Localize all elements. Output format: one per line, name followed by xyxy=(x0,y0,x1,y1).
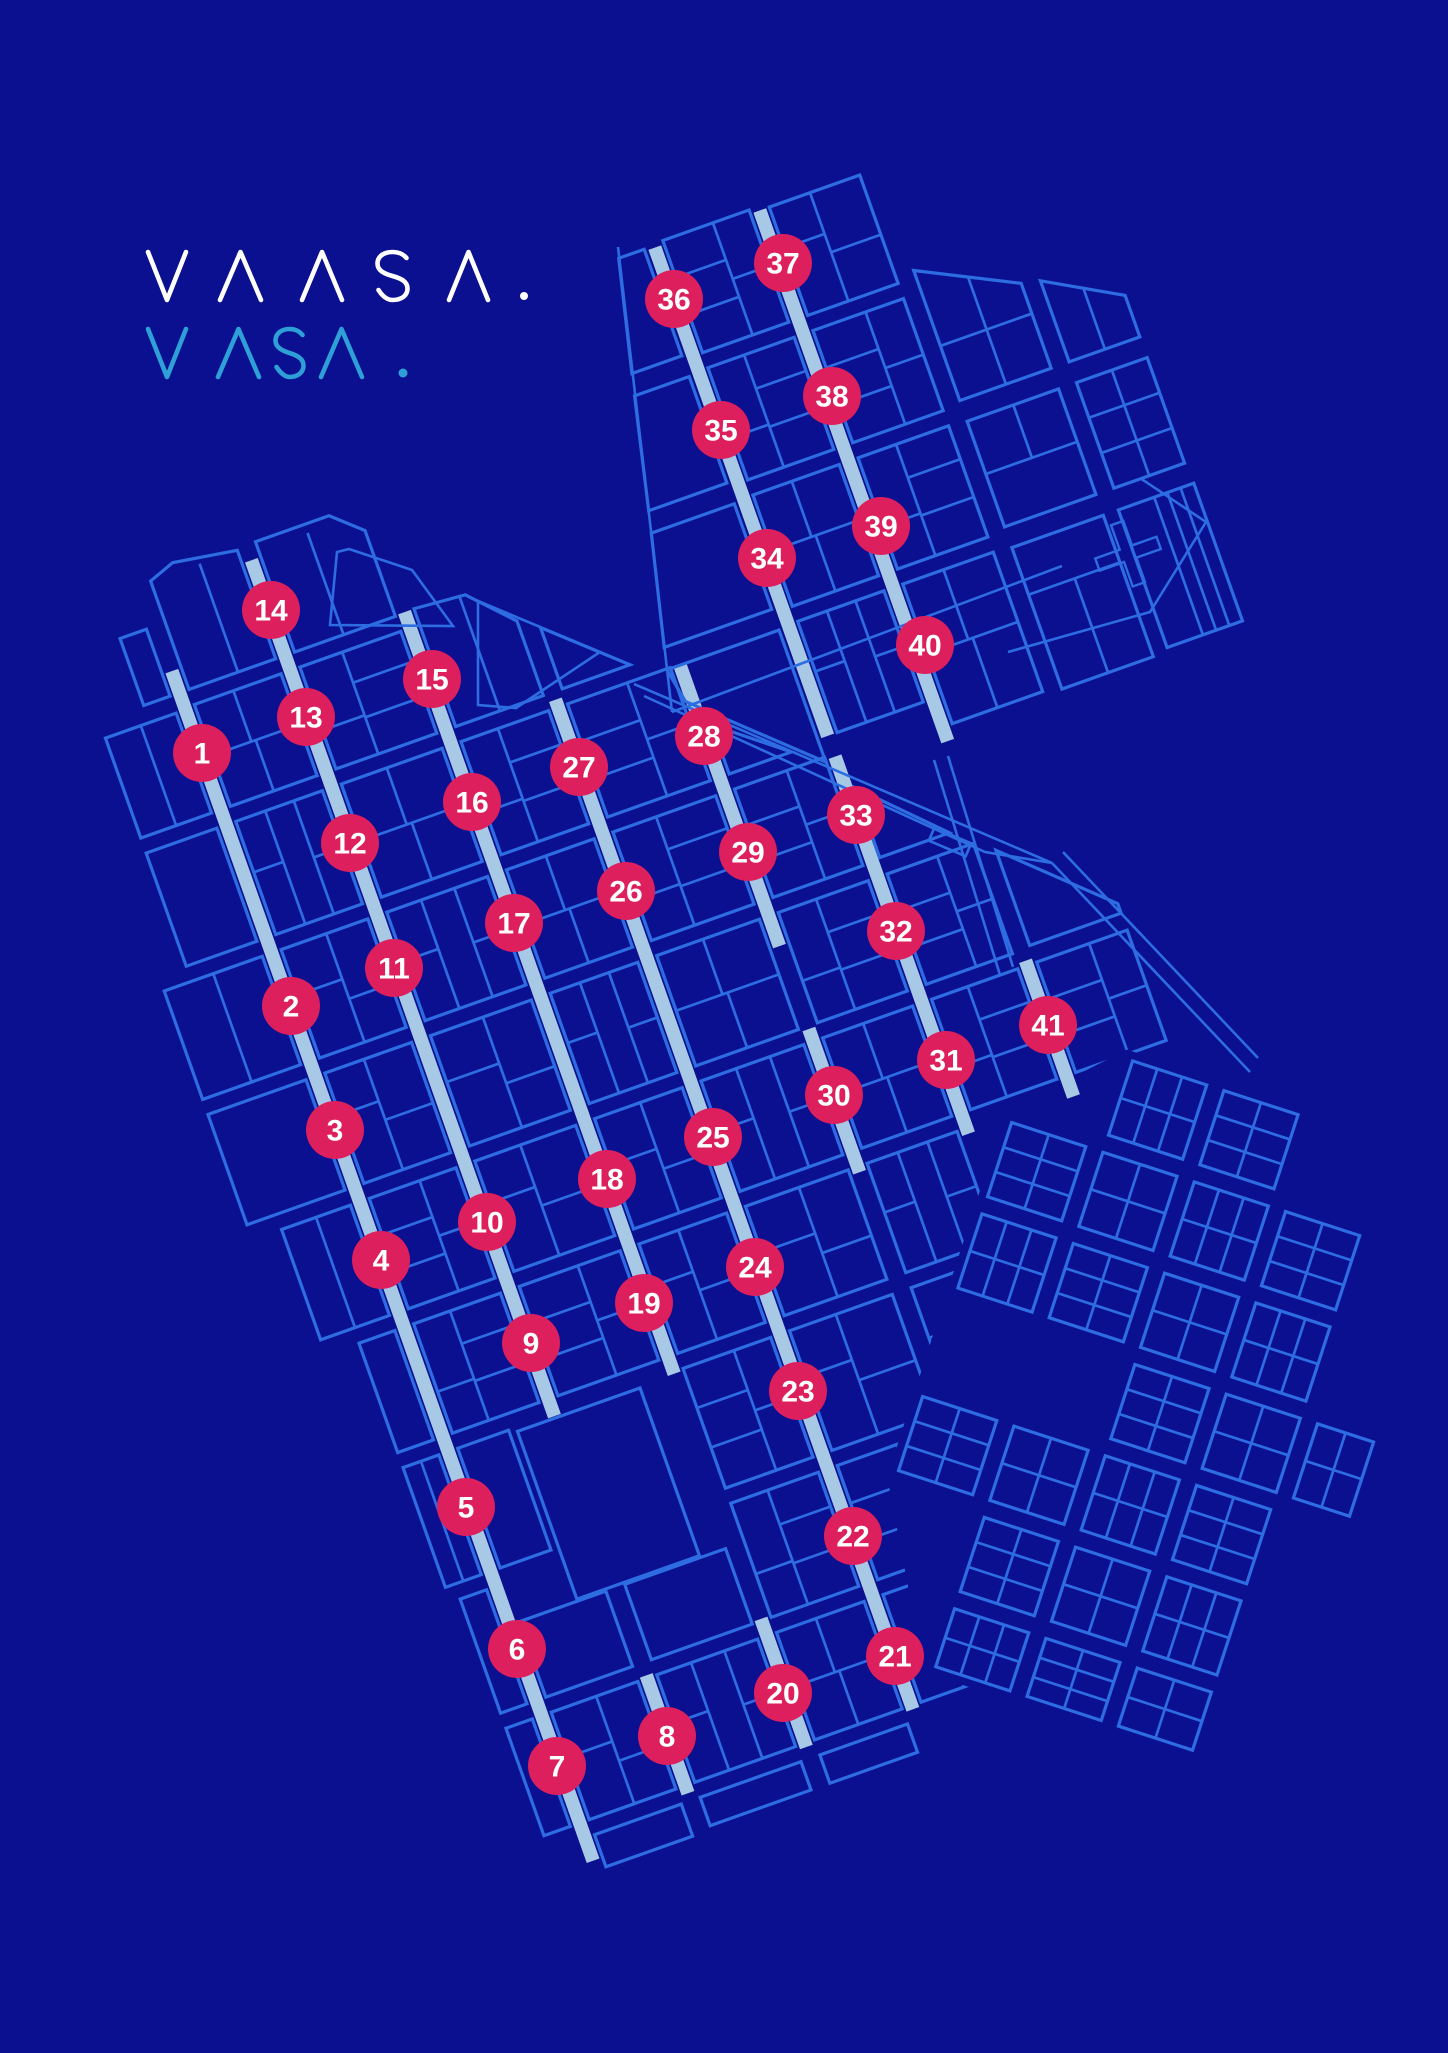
svg-text:38: 38 xyxy=(815,381,848,414)
svg-text:10: 10 xyxy=(470,1207,503,1240)
svg-text:32: 32 xyxy=(879,916,912,949)
svg-text:23: 23 xyxy=(781,1376,814,1409)
svg-text:18: 18 xyxy=(590,1164,623,1197)
svg-text:9: 9 xyxy=(523,1328,540,1361)
svg-text:5: 5 xyxy=(458,1492,475,1525)
svg-text:27: 27 xyxy=(562,752,595,785)
svg-text:31: 31 xyxy=(929,1045,962,1078)
svg-text:29: 29 xyxy=(731,837,764,870)
svg-text:15: 15 xyxy=(415,664,448,697)
svg-text:3: 3 xyxy=(327,1115,344,1148)
svg-text:24: 24 xyxy=(738,1252,772,1285)
svg-text:37: 37 xyxy=(766,248,799,281)
svg-text:40: 40 xyxy=(908,630,941,663)
svg-text:14: 14 xyxy=(254,595,288,628)
svg-text:4: 4 xyxy=(373,1245,390,1278)
svg-text:28: 28 xyxy=(687,721,720,754)
svg-text:6: 6 xyxy=(509,1634,526,1667)
svg-text:11: 11 xyxy=(378,953,410,986)
svg-text:8: 8 xyxy=(659,1721,676,1754)
svg-text:35: 35 xyxy=(704,415,737,448)
svg-text:22: 22 xyxy=(836,1521,869,1554)
svg-text:1: 1 xyxy=(194,738,211,771)
svg-text:7: 7 xyxy=(549,1751,566,1784)
svg-text:16: 16 xyxy=(455,787,488,820)
svg-text:2: 2 xyxy=(283,991,300,1024)
svg-text:26: 26 xyxy=(609,876,642,909)
svg-text:30: 30 xyxy=(817,1080,850,1113)
svg-text:12: 12 xyxy=(333,828,366,861)
svg-text:33: 33 xyxy=(839,800,872,833)
svg-text:25: 25 xyxy=(696,1122,729,1155)
svg-text:34: 34 xyxy=(750,543,784,576)
svg-text:17: 17 xyxy=(497,908,530,941)
svg-text:41: 41 xyxy=(1031,1010,1064,1043)
svg-text:19: 19 xyxy=(627,1288,660,1321)
svg-text:20: 20 xyxy=(766,1678,799,1711)
svg-text:13: 13 xyxy=(289,702,322,735)
svg-text:39: 39 xyxy=(864,511,897,544)
svg-text:36: 36 xyxy=(657,284,690,317)
svg-text:21: 21 xyxy=(878,1641,911,1674)
